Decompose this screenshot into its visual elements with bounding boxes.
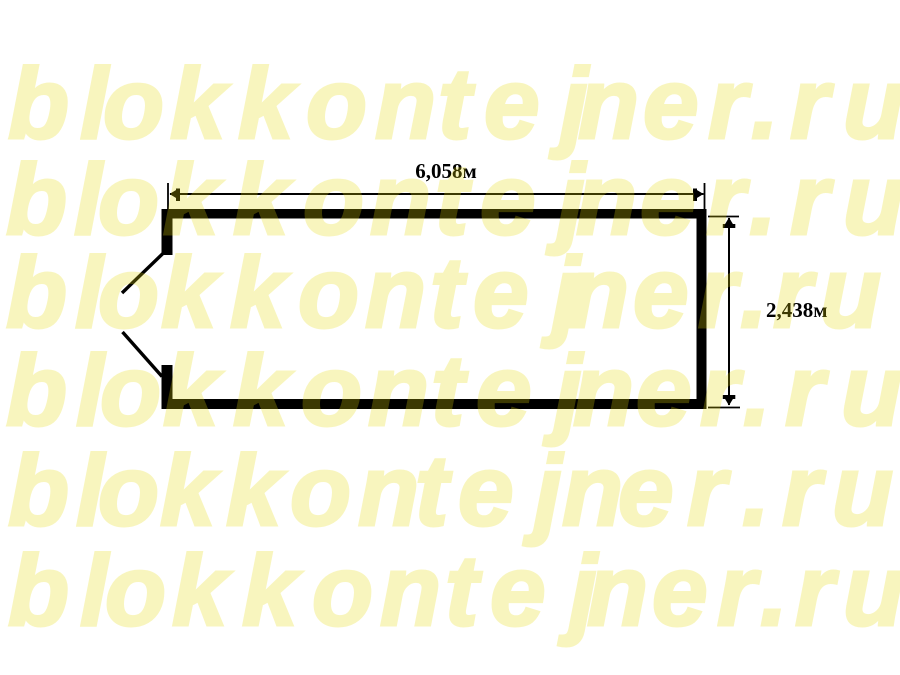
svg-text:blokkontejner.ru: blokkontejner.ru (6, 237, 881, 349)
svg-text:blokkontejner.ru: blokkontejner.ru (6, 335, 900, 447)
svg-text:blokkontejner.ru: blokkontejner.ru (8, 535, 900, 647)
svg-text:blokkontejner.ru: blokkontejner.ru (8, 435, 893, 547)
